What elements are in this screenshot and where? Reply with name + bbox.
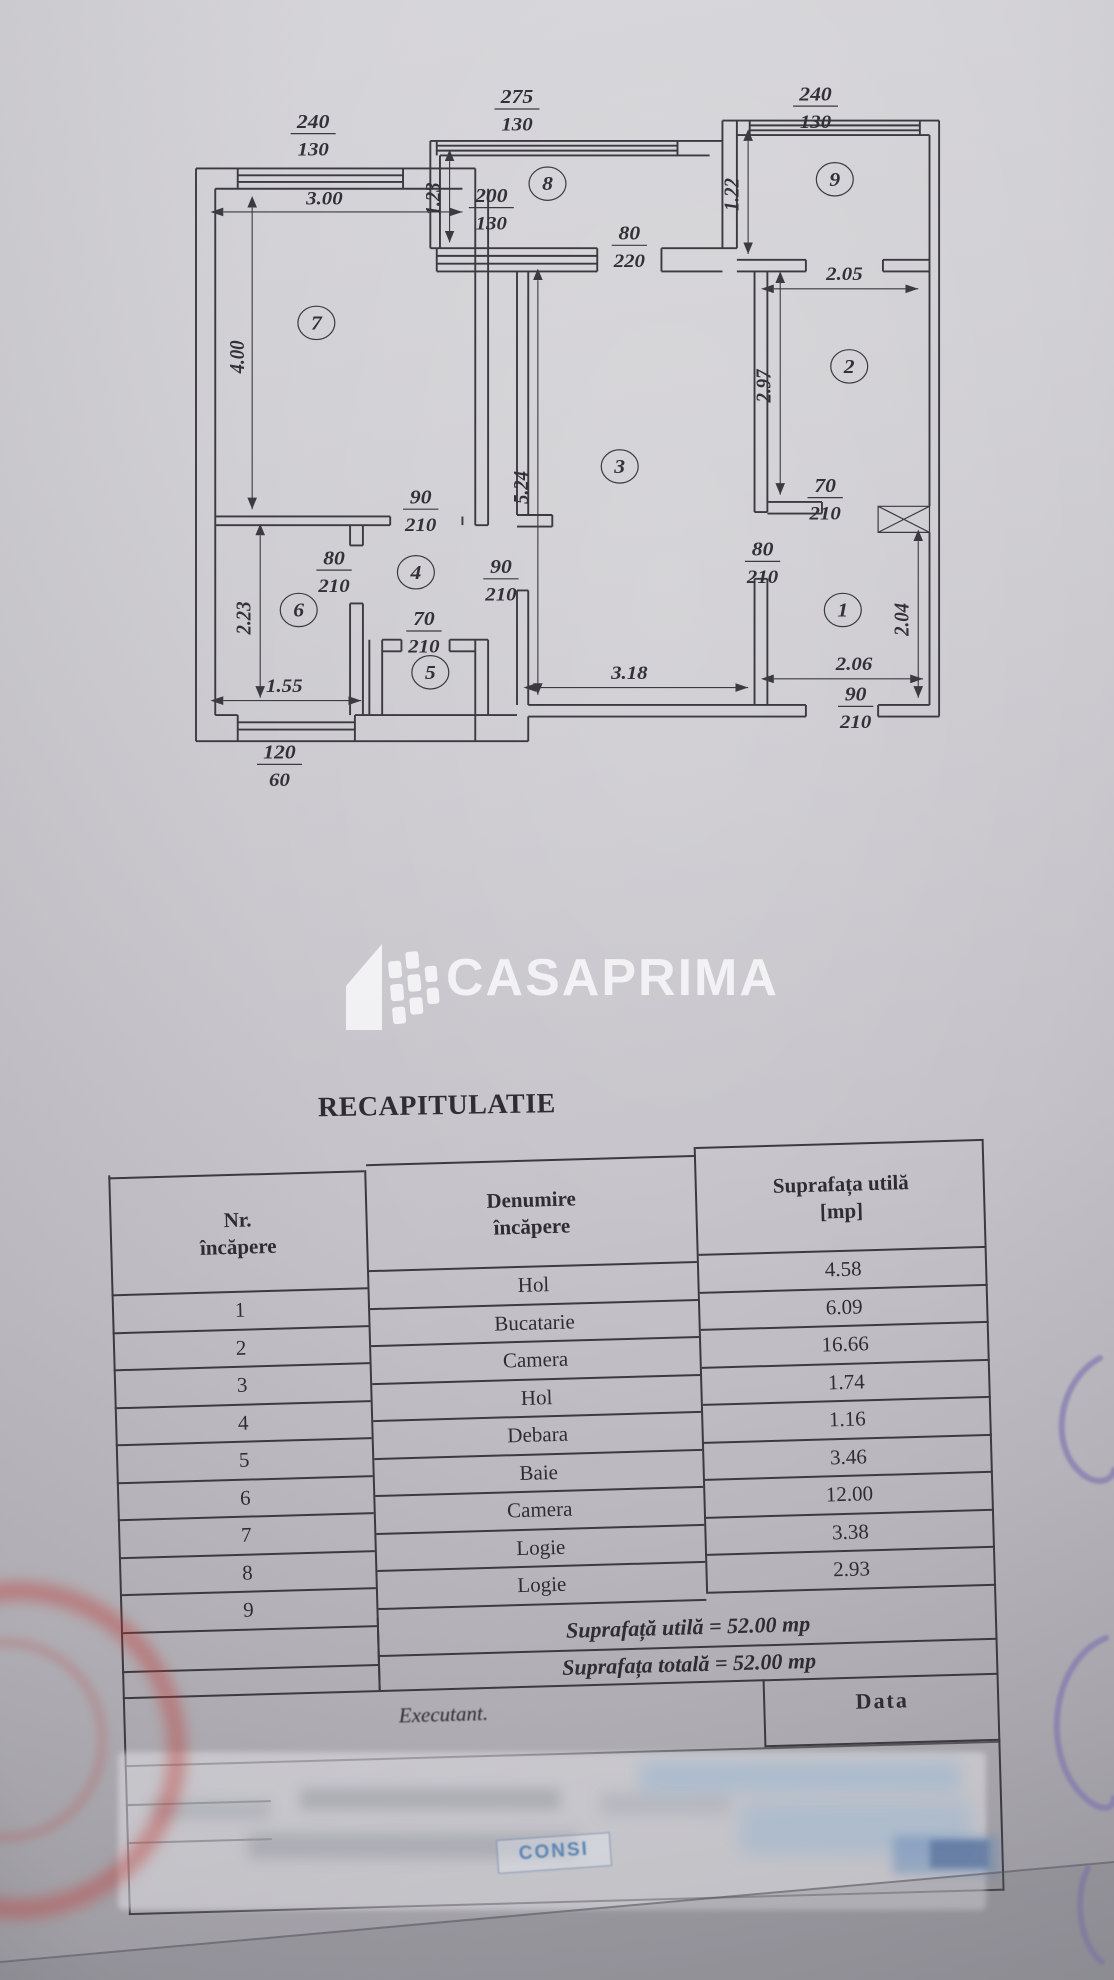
opening-size-denominator: 210 — [839, 712, 871, 733]
opening-size-denominator: 130 — [501, 115, 532, 136]
dimension-label: 1.22 — [721, 178, 744, 211]
room-number: 7 — [311, 313, 323, 334]
opening-size-denominator: 210 — [746, 567, 778, 588]
opening-size-numerator: 275 — [500, 87, 534, 108]
opening-size-numerator: 90 — [845, 684, 867, 705]
room-number: 8 — [542, 174, 553, 195]
table-cell-name: Logie — [377, 1563, 706, 1610]
pen-hook — [1080, 1868, 1102, 1962]
dimension-label: 2.23 — [233, 601, 256, 635]
opening-size-denominator: 210 — [484, 584, 516, 605]
plan-walls — [196, 121, 939, 742]
opening-size-denominator: 130 — [476, 213, 507, 234]
opening-size-denominator: 210 — [407, 637, 439, 658]
pen-circle-arc — [1057, 1638, 1114, 1808]
opening-size-numerator: 120 — [263, 742, 295, 763]
room-number: 1 — [837, 600, 848, 621]
shaft-box — [878, 506, 929, 532]
column-nr: Nr. încăpere 123456789 — [108, 1170, 380, 1697]
dimension-label: 1.55 — [266, 676, 303, 697]
opening-size-numerator: 240 — [296, 112, 330, 133]
opening-size-numerator: 70 — [413, 609, 435, 630]
opening-size-numerator: 240 — [798, 84, 832, 105]
opening-size-denominator: 60 — [269, 770, 290, 791]
casaprima-logo: CASAPRIMA — [338, 930, 808, 1042]
dimension-label: 4.00 — [226, 340, 249, 374]
opening-size-denominator: 220 — [613, 251, 645, 272]
opening-size-numerator: 200 — [474, 186, 508, 207]
opening-size-denominator: 130 — [800, 112, 831, 133]
opening-size-denominator: 130 — [298, 139, 329, 160]
dimension-label: 5.24 — [510, 471, 533, 504]
header-suprafata: Suprafața utilă [mp] — [696, 1139, 987, 1256]
opening-size-denominator: 210 — [317, 576, 349, 597]
room-number: 4 — [409, 563, 421, 584]
dimension-label: 2.04 — [891, 603, 914, 637]
opening-size-denominator: 210 — [404, 515, 436, 536]
room-number: 3 — [613, 457, 625, 478]
opening-size-numerator: 80 — [619, 223, 641, 244]
house-icon — [338, 930, 440, 1034]
dimension-lines — [223, 141, 923, 701]
column-denumire: Denumire încăpere HolBucatarieCameraHolD… — [366, 1155, 706, 1609]
table-cell-area: 2.93 — [707, 1548, 996, 1594]
room-number: 9 — [829, 170, 840, 191]
recap-title: RECAPITULATIE — [318, 1088, 579, 1125]
dimension-label: 1.23 — [422, 182, 445, 215]
opening-size-numerator: 90 — [410, 487, 432, 508]
dimension-label: 3.18 — [610, 663, 648, 684]
opening-size-numerator: 90 — [490, 557, 512, 578]
dimension-label: 2.97 — [753, 368, 776, 403]
header-denumire: Denumire încăpere — [366, 1155, 697, 1272]
opening-size-numerator: 80 — [323, 548, 345, 569]
logo-wordmark: CASAPRIMA — [446, 948, 779, 1008]
dimension-label: 2.06 — [835, 654, 873, 675]
opening-size-denominator: 210 — [808, 503, 840, 524]
plan-labels: 2401302751302401302001308022090210802109… — [226, 84, 914, 791]
room-number: 2 — [843, 357, 855, 378]
photographed-document-page: { "document": { "logo": { "text": "CASAP… — [0, 0, 1114, 1980]
opening-size-numerator: 80 — [752, 539, 774, 560]
dimension-label: 2.05 — [825, 264, 863, 285]
data-label: Data — [763, 1673, 1001, 1748]
pen-squiggle — [1062, 1358, 1114, 1481]
dimension-label: 3.00 — [305, 189, 343, 210]
column-suprafata: Suprafața utilă [mp] 4.586.0916.661.741.… — [694, 1139, 996, 1593]
document-content: 2401302751302401302001308022090210802109… — [0, 0, 1114, 1980]
signature-blur-strip — [118, 1752, 986, 1910]
room-number: 5 — [425, 663, 436, 684]
header-nr: Nr. încăpere — [108, 1170, 367, 1296]
floor-plan-drawing: 2401302751302401302001308022090210802109… — [0, 0, 1114, 840]
room-number: 6 — [293, 600, 305, 621]
opening-size-numerator: 70 — [814, 476, 836, 497]
